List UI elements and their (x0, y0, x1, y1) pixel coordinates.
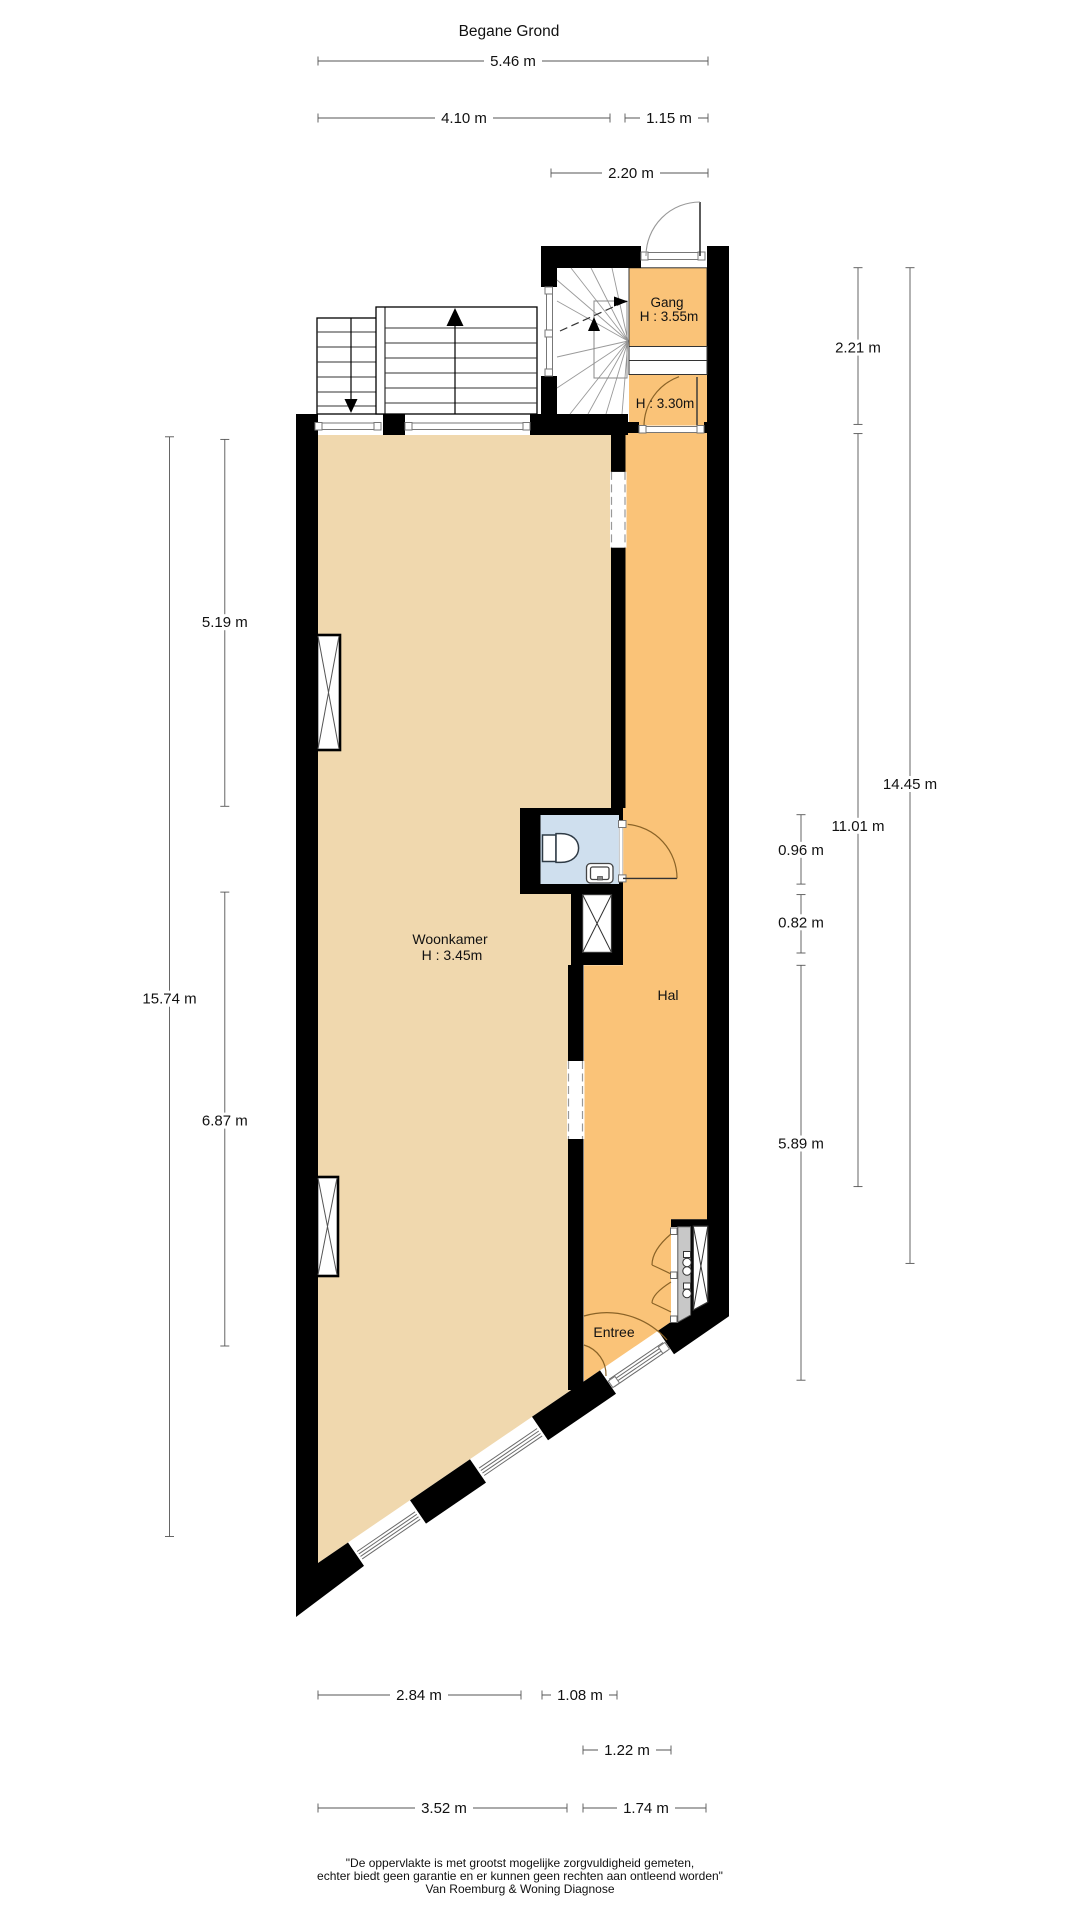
svg-text:3.52 m: 3.52 m (421, 1800, 467, 1817)
svg-text:5.89 m: 5.89 m (778, 1136, 824, 1153)
svg-text:6.87 m: 6.87 m (202, 1113, 248, 1130)
svg-text:Entree: Entree (593, 1324, 634, 1340)
svg-text:15.74 m: 15.74 m (142, 991, 196, 1008)
svg-text:Hal: Hal (657, 987, 678, 1003)
svg-text:2.20 m: 2.20 m (608, 165, 654, 182)
svg-text:1.08 m: 1.08 m (557, 1687, 603, 1704)
svg-text:Begane Grond: Begane Grond (459, 23, 560, 40)
svg-text:H : 3.30m: H : 3.30m (636, 396, 695, 411)
svg-text:Van Roemburg & Woning Diagnose: Van Roemburg & Woning Diagnose (426, 1882, 615, 1896)
svg-text:2.21 m: 2.21 m (835, 340, 881, 357)
svg-text:0.82 m: 0.82 m (778, 914, 824, 931)
svg-text:H : 3.45m: H : 3.45m (422, 947, 483, 963)
svg-text:5.19 m: 5.19 m (202, 614, 248, 631)
svg-text:11.01 m: 11.01 m (831, 818, 884, 835)
svg-text:echter biedt geen garantie en: echter biedt geen garantie en er kunnen … (317, 1869, 723, 1883)
svg-text:Gang: Gang (650, 295, 683, 310)
svg-text:1.22 m: 1.22 m (604, 1742, 650, 1759)
svg-text:Woonkamer: Woonkamer (412, 931, 488, 947)
svg-text:1.74 m: 1.74 m (623, 1800, 669, 1817)
svg-text:H : 3.55m: H : 3.55m (640, 309, 699, 324)
svg-text:14.45 m: 14.45 m (883, 776, 937, 793)
svg-text:5.46 m: 5.46 m (490, 53, 536, 70)
svg-text:4.10 m: 4.10 m (441, 110, 487, 127)
svg-text:1.15 m: 1.15 m (646, 110, 692, 127)
svg-text:2.84 m: 2.84 m (396, 1687, 442, 1704)
svg-text:0.96 m: 0.96 m (778, 842, 824, 859)
svg-text:"De oppervlakte is met grootst: "De oppervlakte is met grootst mogelijke… (346, 1856, 694, 1870)
